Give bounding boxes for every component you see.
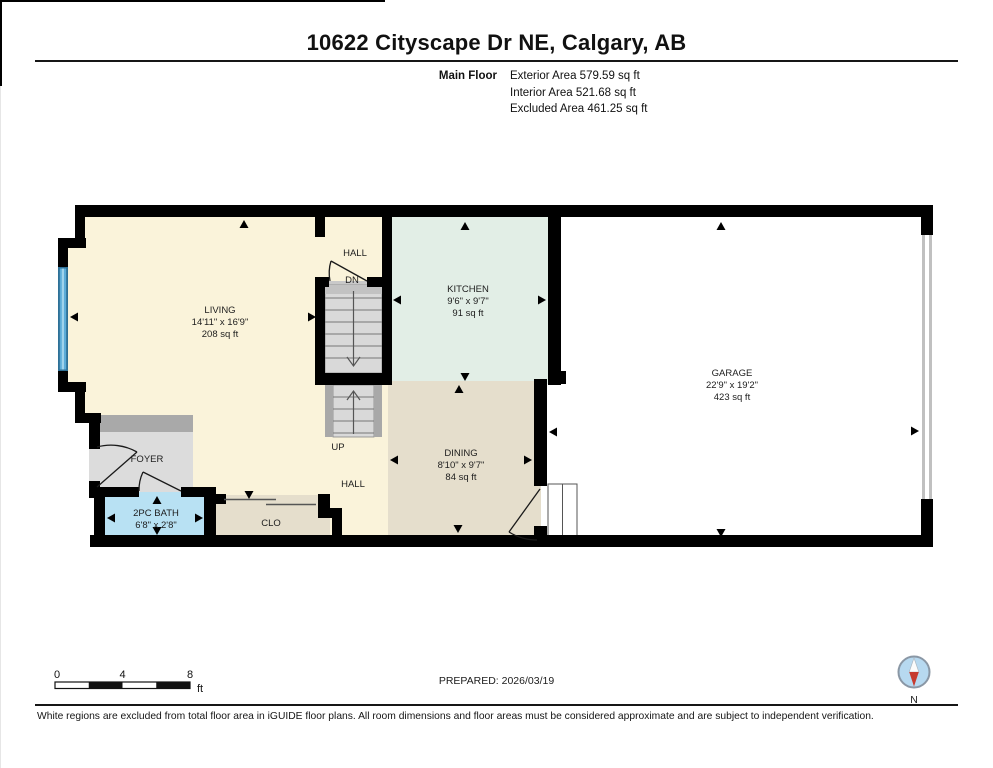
stairs-dn-label: DN [345, 275, 359, 286]
footer-divider [35, 704, 958, 706]
prepared-date: PREPARED: 2026/03/19 [0, 675, 993, 687]
stairs-up-label: UP [331, 442, 344, 453]
foyer-label: FOYER [131, 454, 164, 465]
living-area: 208 sq ft [202, 329, 239, 340]
garage-label: GARAGE [712, 368, 753, 379]
room-living [85, 212, 320, 418]
garage-area: 423 sq ft [714, 392, 751, 403]
room-hall-strip [193, 415, 320, 499]
stairs-up [325, 385, 382, 437]
living-dims: 14'11" x 16'9" [192, 317, 249, 328]
disclaimer-text: White regions are excluded from total fl… [37, 711, 957, 722]
living-label: LIVING [204, 305, 235, 316]
kitchen-area: 91 sq ft [452, 308, 484, 319]
closet-label: CLO [261, 518, 281, 529]
floorplan-drawing: LIVING 14'11" x 16'9" 208 sq ft KITCHEN … [0, 0, 993, 768]
garage-steps [548, 484, 577, 538]
dining-dims: 8'10" x 9'7" [438, 460, 485, 471]
dining-area: 84 sq ft [445, 472, 477, 483]
garage-dims: 22'9" x 19'2" [706, 380, 758, 391]
bath-dims: 6'8" x 2'8" [135, 520, 177, 531]
stairs-down [325, 285, 382, 373]
living-window [58, 267, 68, 371]
kitchen-label: KITCHEN [447, 284, 489, 295]
room-living-bay [66, 246, 96, 384]
room-closet [215, 495, 330, 539]
bath-label: 2PC BATH [133, 508, 179, 519]
dining-label: DINING [444, 448, 477, 459]
foyer-lintel [100, 415, 193, 432]
kitchen-dims: 9'6" x 9'7" [447, 296, 489, 307]
hall-lower-label: HALL [341, 479, 365, 490]
hall-upper-label: HALL [343, 248, 367, 259]
